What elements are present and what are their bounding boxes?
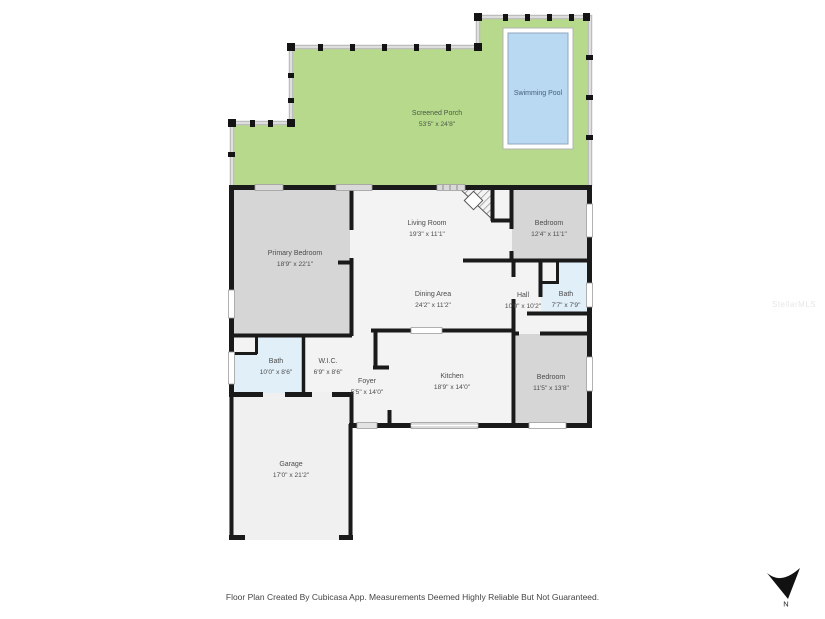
room-floors (229, 185, 592, 540)
floor-plan-drawing (0, 0, 825, 619)
floor-plan-canvas: Screened Porch 53'5" x 24'8" Swimming Po… (0, 0, 825, 619)
swimming-pool-shape (503, 28, 573, 149)
watermark: StellarMLS (772, 300, 816, 309)
footer-disclaimer: Floor Plan Created By Cubicasa App. Meas… (0, 592, 825, 602)
